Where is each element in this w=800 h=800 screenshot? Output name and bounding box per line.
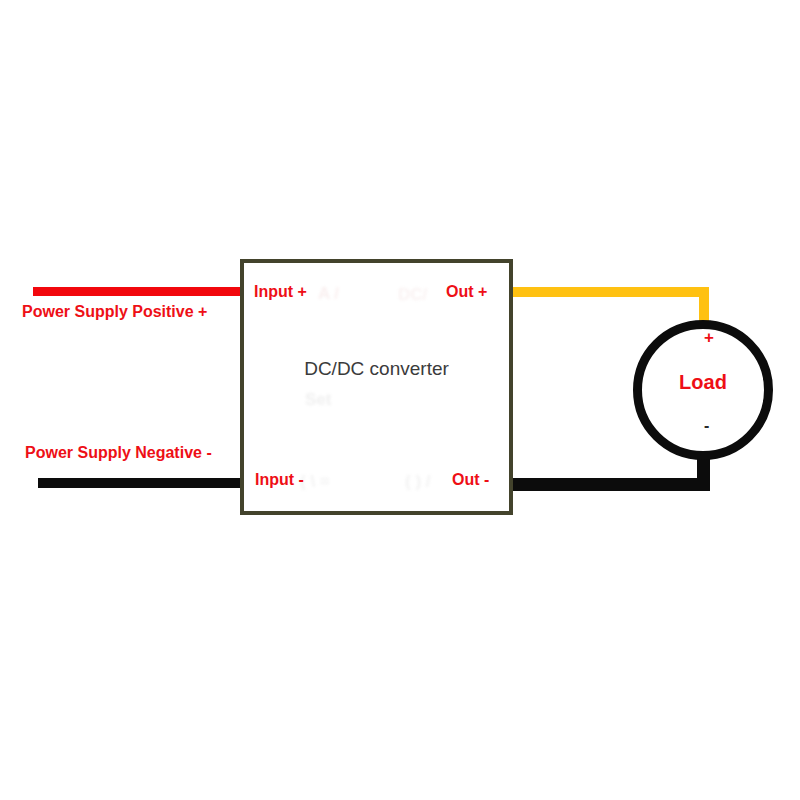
ghost-artifact: ( ) / (405, 472, 431, 492)
input-plus-label: Input + (254, 283, 307, 301)
out-minus-label: Out - (452, 471, 489, 489)
positive-input-wire (33, 287, 244, 296)
converter-title: DC/DC converter (240, 358, 513, 380)
ghost-artifact: DC/ (398, 285, 427, 305)
power-supply-negative-label: Power Supply Negative - (25, 444, 212, 462)
load-positive-terminal-label: + (704, 328, 714, 348)
positive-output-wire-horizontal (509, 287, 709, 297)
load-negative-terminal-label: - (704, 417, 709, 435)
out-plus-label: Out + (446, 283, 487, 301)
ghost-artifact: A / (318, 284, 339, 304)
wiring-diagram: A / DC/ Set ( \ = ( ) / Power Supply Pos… (0, 0, 800, 800)
negative-output-wire-horizontal (509, 478, 710, 491)
negative-input-wire (38, 478, 244, 488)
power-supply-positive-label: Power Supply Positive + (22, 303, 207, 321)
load-label: Load (633, 371, 773, 394)
ghost-artifact: Set (305, 390, 331, 410)
ghost-artifact: ( \ = (300, 472, 330, 492)
input-minus-label: Input - (255, 471, 304, 489)
